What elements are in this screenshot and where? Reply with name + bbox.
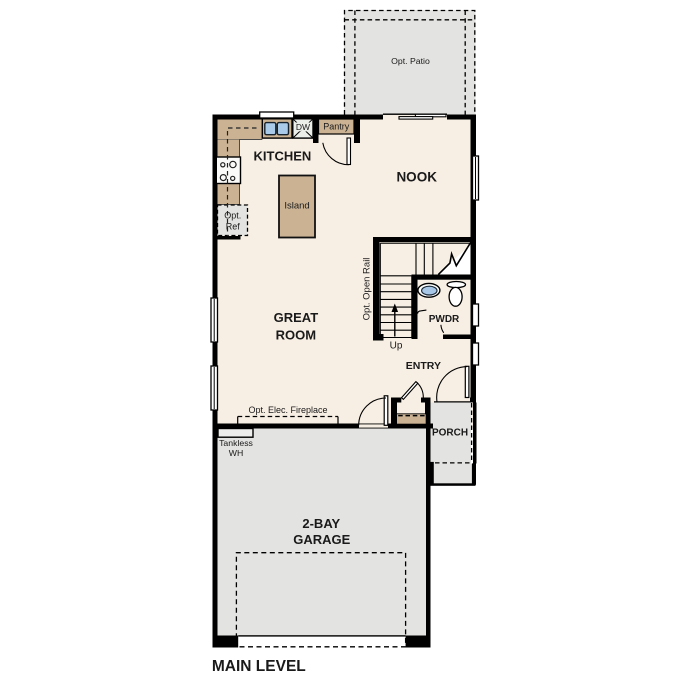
svg-text:ROOM: ROOM xyxy=(276,328,316,343)
svg-text:WH: WH xyxy=(229,448,243,458)
svg-text:Island: Island xyxy=(284,200,309,211)
svg-text:Opt.: Opt. xyxy=(224,211,241,221)
svg-text:Pantry: Pantry xyxy=(323,121,350,131)
svg-text:2-BAY: 2-BAY xyxy=(302,516,340,531)
svg-text:GARAGE: GARAGE xyxy=(293,532,350,547)
svg-text:Opt. Open Rail: Opt. Open Rail xyxy=(362,258,373,321)
svg-text:KITCHEN: KITCHEN xyxy=(254,148,312,163)
svg-text:Opt. Patio: Opt. Patio xyxy=(391,56,430,66)
svg-text:NOOK: NOOK xyxy=(396,170,437,185)
svg-text:Opt. Elec. Fireplace: Opt. Elec. Fireplace xyxy=(248,405,327,415)
svg-text:PWDR: PWDR xyxy=(429,314,460,325)
svg-text:PORCH: PORCH xyxy=(432,427,468,438)
svg-text:DW: DW xyxy=(296,122,310,132)
svg-text:GREAT: GREAT xyxy=(274,310,319,325)
svg-text:Tankless: Tankless xyxy=(219,438,253,448)
svg-text:ENTRY: ENTRY xyxy=(406,360,441,372)
svg-text:Up: Up xyxy=(390,341,403,352)
svg-text:MAIN LEVEL: MAIN LEVEL xyxy=(212,658,306,675)
